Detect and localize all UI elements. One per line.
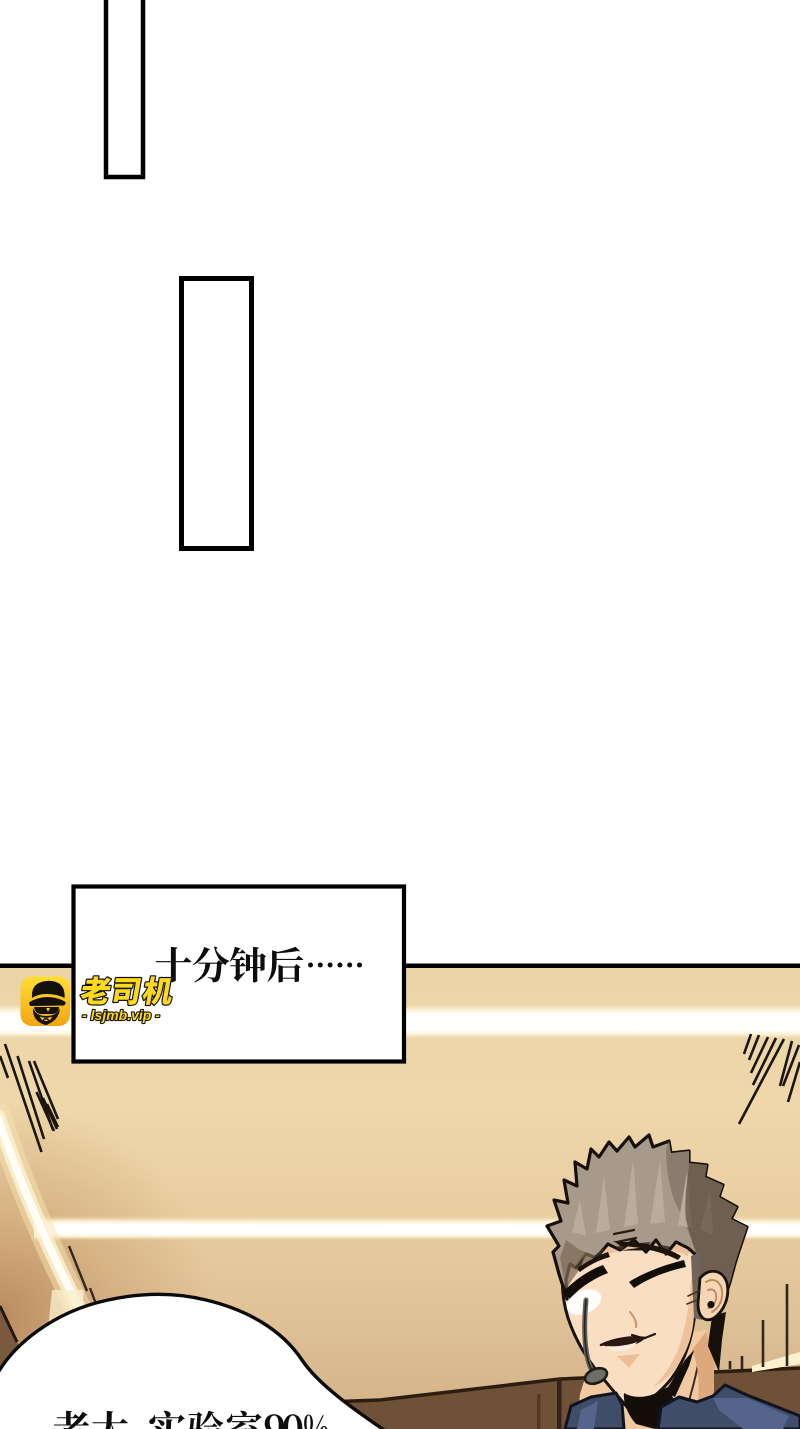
svg-text:- lsjmb.vip -: - lsjmb.vip - — [82, 1007, 160, 1023]
